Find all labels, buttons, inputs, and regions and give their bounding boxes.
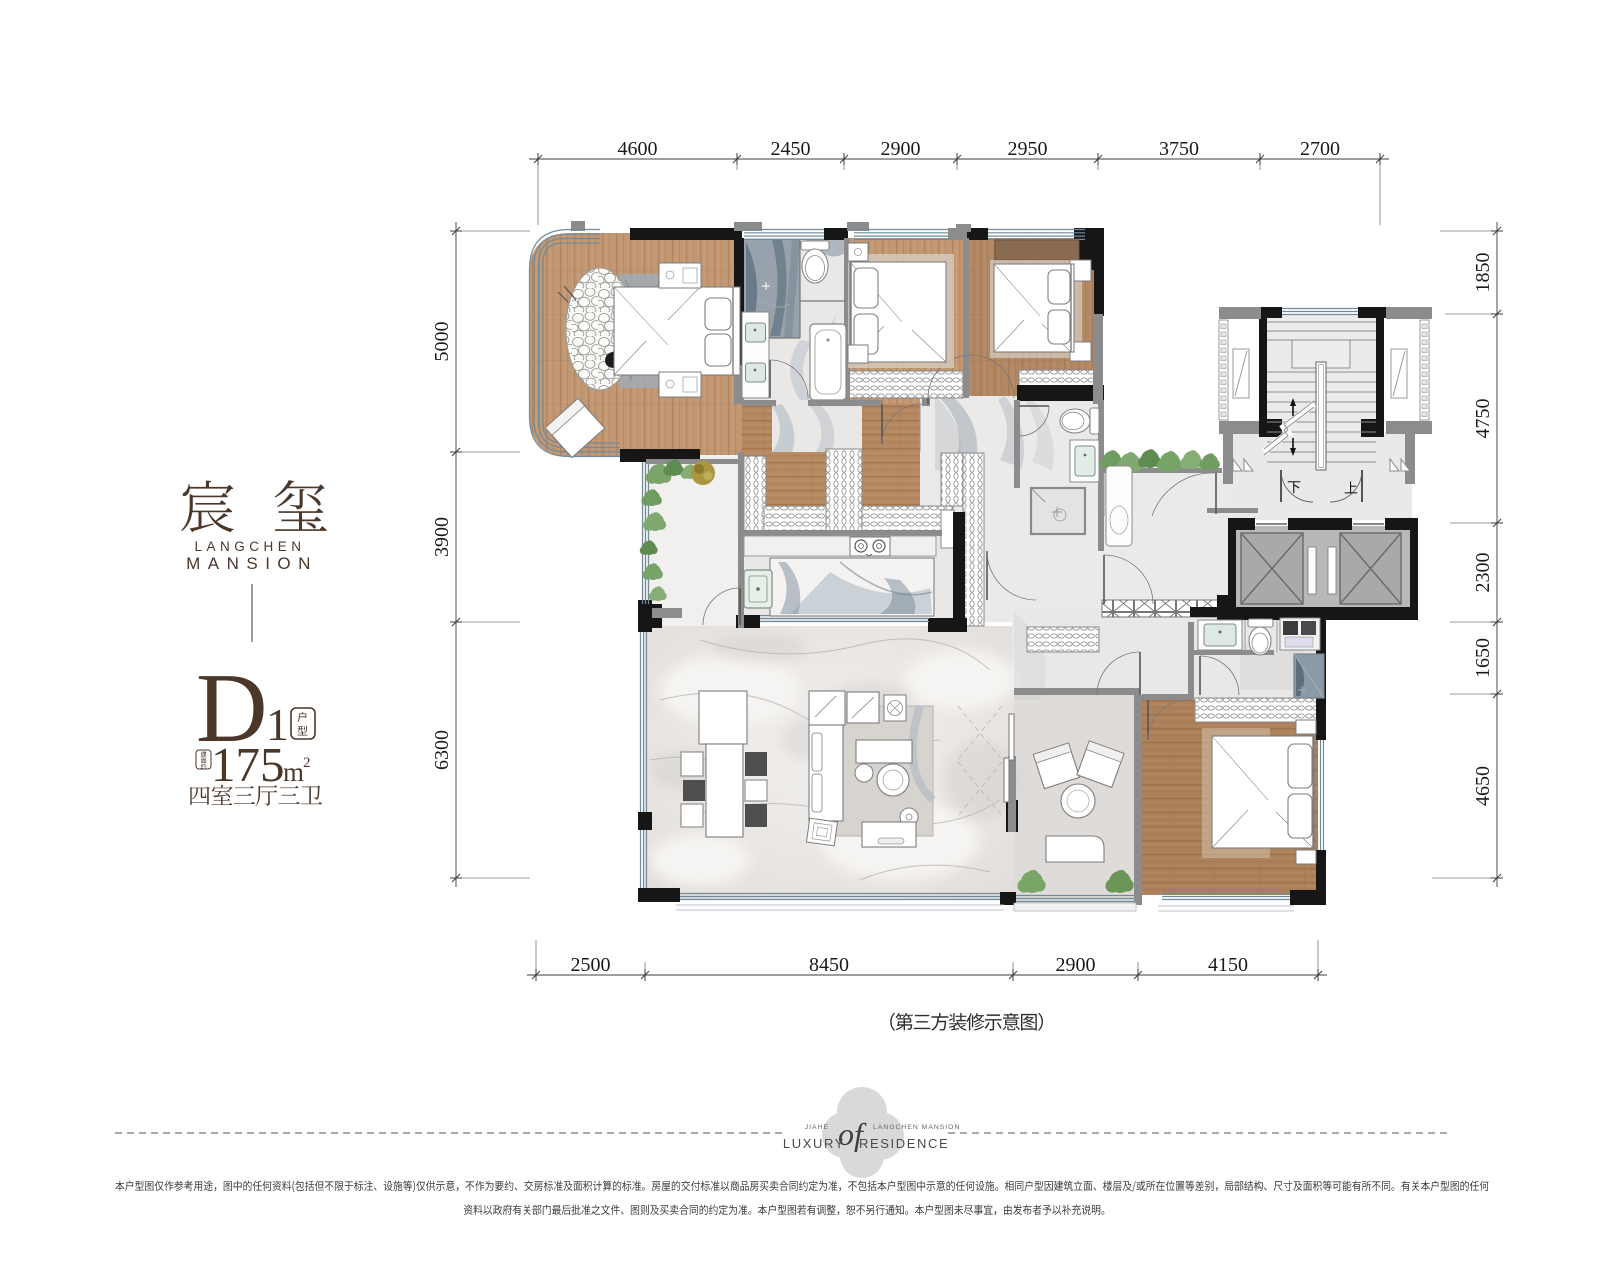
svg-text:175: 175 [211, 737, 285, 792]
svg-text:2700: 2700 [1300, 138, 1340, 160]
svg-text:RESIDENCE: RESIDENCE [859, 1136, 949, 1151]
svg-text:2900: 2900 [881, 138, 921, 160]
svg-text:4150: 4150 [1208, 954, 1248, 976]
svg-text:2950: 2950 [1008, 138, 1048, 160]
svg-text:LUXURY: LUXURY [783, 1136, 845, 1151]
svg-text:5000: 5000 [431, 322, 453, 362]
svg-text:6300: 6300 [431, 730, 453, 770]
svg-text:JIAHE: JIAHE [805, 1124, 829, 1131]
svg-text:LANGCHEN MANSION: LANGCHEN MANSION [873, 1124, 960, 1131]
svg-text:3900: 3900 [431, 517, 453, 557]
svg-text:3750: 3750 [1159, 138, 1199, 160]
svg-text:4650: 4650 [1472, 766, 1494, 806]
svg-text:2450: 2450 [771, 138, 811, 160]
svg-text:2: 2 [303, 755, 311, 771]
svg-text:LANGCHEN: LANGCHEN [194, 539, 305, 554]
svg-text:4600: 4600 [618, 138, 658, 160]
svg-text:MANSION: MANSION [186, 554, 318, 573]
svg-text:1650: 1650 [1472, 638, 1494, 678]
svg-text:2300: 2300 [1472, 553, 1494, 593]
svg-text:8450: 8450 [809, 954, 849, 976]
svg-text:2900: 2900 [1056, 954, 1096, 976]
svg-text:4750: 4750 [1472, 399, 1494, 439]
svg-text:2500: 2500 [571, 954, 611, 976]
svg-text:m: m [283, 757, 304, 787]
svg-text:1850: 1850 [1472, 253, 1494, 293]
